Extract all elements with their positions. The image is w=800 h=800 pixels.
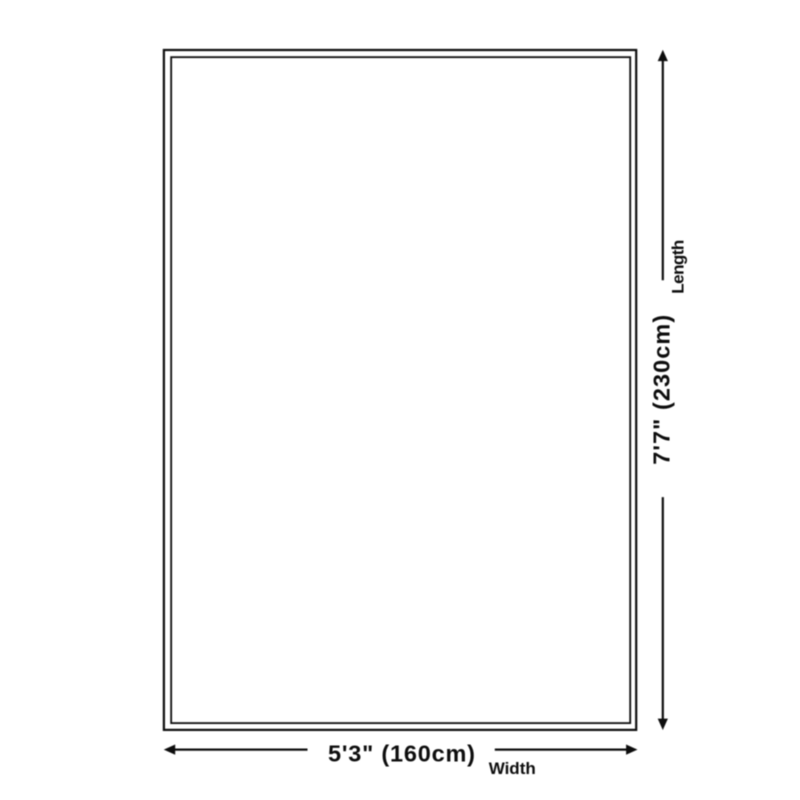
- svg-text:Width: Width: [489, 759, 536, 778]
- svg-text:7'7" (230cm): 7'7" (230cm): [649, 315, 675, 465]
- svg-text:5'3" (160cm): 5'3" (160cm): [328, 741, 475, 767]
- svg-text:Length: Length: [669, 240, 688, 294]
